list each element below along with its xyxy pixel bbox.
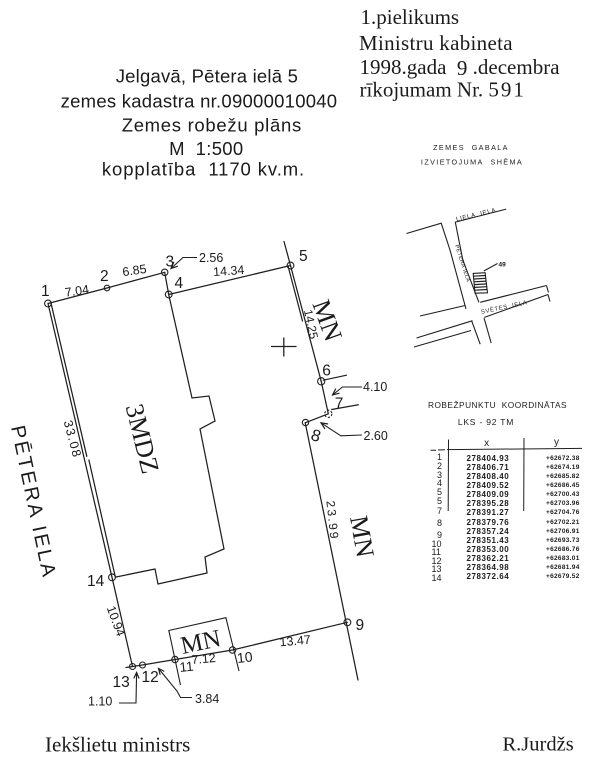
svg-text:kopplatība 1170 kv.m.: kopplatība 1170 kv.m. [102,159,305,180]
svg-text:6: 6 [322,363,331,380]
svg-text:2.60: 2.60 [364,429,388,443]
svg-text:+62674.19: +62674.19 [546,464,580,471]
svg-text:49: 49 [499,262,507,269]
svg-text:13.47: 13.47 [279,633,311,650]
svg-text:10: 10 [236,648,253,666]
svg-text:PĒTERA IELA: PĒTERA IELA [6,423,61,581]
svg-text:4: 4 [175,275,184,292]
svg-text:+62685.82: +62685.82 [546,473,580,480]
svg-text:278409.09: 278409.09 [467,490,510,499]
svg-text:278406.71: 278406.71 [467,463,510,472]
svg-text:+62700.43: +62700.43 [546,491,580,498]
svg-text:ZEMES GABALA: ZEMES GABALA [433,143,509,152]
svg-text:14: 14 [87,573,105,590]
svg-text:LIELA IELA: LIELA IELA [455,207,497,223]
svg-text:LKS - 92 TM: LKS - 92 TM [458,417,514,427]
svg-text:6.85: 6.85 [121,262,147,279]
svg-text:+62683.01: +62683.01 [546,555,580,562]
svg-text:Zemes robežu plāns: Zemes robežu plāns [122,115,302,136]
svg-text:M 1:500: M 1:500 [169,138,243,159]
svg-text:+62706.91: +62706.91 [546,528,580,535]
svg-text:Iekšlietu ministrs: Iekšlietu ministrs [45,733,190,757]
svg-text:33.08: 33.08 [61,419,85,460]
svg-text:1998.gada 9 .decembra: 1998.gada 9 .decembra [360,55,561,80]
svg-text:IZVIETOJUMA SHĒMA: IZVIETOJUMA SHĒMA [421,158,523,167]
svg-text:1.10: 1.10 [88,695,112,709]
svg-text:zemes kadastra nr.09000010040: zemes kadastra nr.09000010040 [61,91,338,112]
svg-text:278395.28: 278395.28 [467,499,510,508]
svg-text:1.pielikums: 1.pielikums [361,5,460,29]
svg-text:13: 13 [113,674,130,691]
svg-text:+62704.76: +62704.76 [546,509,580,516]
svg-text:Ministru kabineta: Ministru kabineta [359,31,513,55]
svg-text:3.84: 3.84 [195,692,219,706]
svg-text:MN: MN [178,625,223,660]
svg-text:5: 5 [437,496,442,506]
svg-text:+62686.76: +62686.76 [546,546,580,553]
svg-text:23.99: 23.99 [323,500,341,541]
svg-text:SVĒTES IELA: SVĒTES IELA [480,299,528,316]
svg-text:R.Jurdžs: R.Jurdžs [503,734,574,756]
svg-text:+62672.38: +62672.38 [546,455,580,462]
svg-text:7: 7 [335,395,344,412]
svg-text:9: 9 [356,617,365,634]
svg-text:5: 5 [299,248,308,265]
svg-text:+62693.73: +62693.73 [546,537,580,544]
svg-text:278362.21: 278362.21 [467,554,510,563]
svg-text:10.94: 10.94 [104,604,128,638]
svg-text:7.04: 7.04 [64,282,90,299]
svg-text:+62703.96: +62703.96 [546,500,580,507]
svg-text:2.56: 2.56 [199,251,223,265]
svg-text:278409.52: 278409.52 [467,481,510,490]
svg-text:+62702.21: +62702.21 [546,519,580,526]
svg-text:+62686.45: +62686.45 [546,482,580,489]
svg-text:14: 14 [432,573,442,583]
svg-text:278379.76: 278379.76 [467,518,510,527]
svg-text:rīkojumam Nr. 591: rīkojumam Nr. 591 [360,78,526,102]
svg-text:8: 8 [309,426,323,446]
svg-text:MN: MN [344,513,380,560]
svg-text:ROBEŽPUNKTU KOORDINĀTAS: ROBEŽPUNKTU KOORDINĀTAS [428,400,567,410]
svg-text:3MDZ: 3MDZ [120,401,165,477]
svg-text:2: 2 [100,268,109,285]
svg-text:278404.93: 278404.93 [467,454,510,463]
svg-text:4.10: 4.10 [363,380,387,394]
svg-text:278353.00: 278353.00 [467,545,510,554]
svg-text:Jelgavā, Pētera ielā 5: Jelgavā, Pētera ielā 5 [116,66,298,87]
svg-text:14.34: 14.34 [213,263,245,279]
svg-text:7: 7 [437,506,442,516]
svg-text:278351.43: 278351.43 [467,536,510,545]
svg-text:+62681.94: +62681.94 [546,564,580,571]
svg-text:+62679.52: +62679.52 [546,573,580,580]
svg-text:278408.40: 278408.40 [467,472,510,481]
svg-text:12: 12 [142,669,159,686]
svg-text:x: x [484,438,489,449]
svg-text:1: 1 [41,283,50,300]
svg-text:278372.64: 278372.64 [467,572,510,581]
svg-text:y: y [554,437,559,448]
svg-text:278391.27: 278391.27 [467,508,510,517]
svg-text:8: 8 [437,518,442,528]
svg-text:PĒTERA IELA: PĒTERA IELA [453,244,472,283]
svg-text:278364.98: 278364.98 [467,563,510,572]
svg-text:278357.24: 278357.24 [467,527,510,536]
